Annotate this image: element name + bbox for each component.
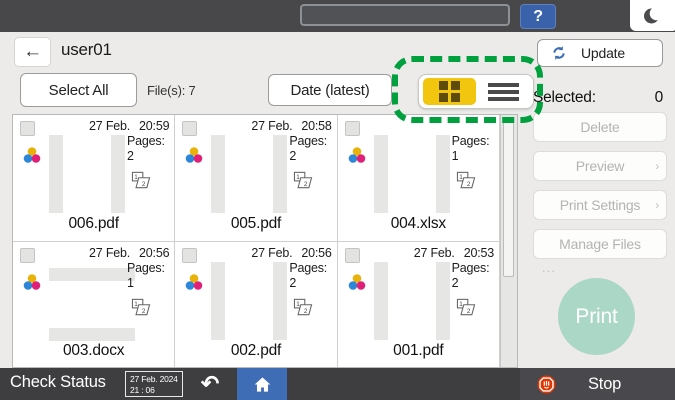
grid-view-icon bbox=[439, 81, 460, 102]
file-datetime: 27 Feb.20:56 bbox=[89, 246, 169, 260]
file-name: 006.pdf bbox=[13, 215, 174, 233]
help-button[interactable]: ? bbox=[520, 4, 556, 29]
file-checkbox[interactable] bbox=[345, 248, 360, 263]
duplex-icon: 1 2 bbox=[131, 298, 151, 316]
delete-button[interactable]: Delete bbox=[533, 112, 667, 142]
file-checkbox[interactable] bbox=[345, 121, 360, 136]
file-checkbox[interactable] bbox=[182, 248, 197, 263]
file-list-panel: 27 Feb.20:59 Pages:2 1 2 006.pdf bbox=[12, 114, 518, 368]
pages-count: Pages:2 bbox=[452, 261, 490, 291]
file-datetime: 27 Feb.20:53 bbox=[414, 246, 494, 260]
back-button[interactable]: ← bbox=[14, 37, 51, 67]
pages-count: Pages:1 bbox=[127, 261, 165, 291]
print-button[interactable]: Print bbox=[558, 278, 635, 355]
file-name: 005.pdf bbox=[175, 215, 336, 233]
check-status-button[interactable]: Check Status bbox=[10, 373, 106, 392]
file-grid: 27 Feb.20:59 Pages:2 1 2 006.pdf bbox=[13, 115, 500, 368]
page-title: user01 bbox=[61, 40, 112, 60]
file-tile[interactable]: 27 Feb.20:56 Pages:1 1 2 003.docx bbox=[13, 242, 175, 368]
scrollbar-thumb[interactable] bbox=[503, 117, 514, 277]
file-name: 002.pdf bbox=[175, 342, 336, 360]
duplex-icon: 1 2 bbox=[456, 298, 476, 316]
manage-files-label: Manage Files bbox=[559, 236, 641, 252]
view-toggle-group bbox=[418, 74, 534, 109]
duplex-icon: 1 2 bbox=[293, 171, 313, 189]
list-view-button[interactable] bbox=[477, 78, 530, 105]
moon-icon bbox=[643, 6, 663, 26]
file-name: 004.xlsx bbox=[338, 215, 499, 233]
energy-saver-button[interactable] bbox=[630, 0, 675, 31]
system-datetime: 27 Feb. 2024 21 : 06 bbox=[125, 371, 183, 397]
system-time: 21 : 06 bbox=[130, 385, 155, 395]
color-mode-icon bbox=[183, 145, 205, 167]
list-view-icon bbox=[488, 83, 519, 101]
print-settings-label: Print Settings bbox=[560, 197, 640, 213]
file-tile[interactable]: 27 Feb.20:58 Pages:2 1 2 005.pdf bbox=[175, 115, 337, 242]
chevron-right-icon: › bbox=[655, 159, 659, 173]
selected-count: 0 bbox=[655, 89, 663, 107]
stop-button[interactable]: Stop bbox=[520, 368, 675, 400]
duplex-icon: 1 2 bbox=[293, 298, 313, 316]
sort-order-button[interactable]: Date (latest) bbox=[268, 74, 392, 106]
system-date: 27 Feb. 2024 bbox=[130, 374, 178, 384]
pages-count: Pages:2 bbox=[127, 134, 165, 164]
update-label: Update bbox=[581, 45, 625, 61]
system-search-input[interactable] bbox=[300, 4, 510, 26]
duplex-icon: 1 2 bbox=[131, 171, 151, 189]
grid-view-button[interactable] bbox=[423, 78, 476, 105]
file-datetime: 27 Feb.20:59 bbox=[89, 119, 169, 133]
selected-label: Selected: bbox=[533, 89, 596, 107]
manage-files-button[interactable]: Manage Files ... bbox=[533, 229, 667, 259]
update-button[interactable]: Update bbox=[537, 39, 663, 67]
file-name: 003.docx bbox=[13, 342, 174, 360]
home-icon bbox=[253, 375, 272, 394]
file-count-label: File(s): 7 bbox=[147, 83, 196, 98]
file-datetime: 27 Feb.20:58 bbox=[251, 119, 331, 133]
selected-count-row: Selected: 0 bbox=[533, 89, 663, 107]
file-tile[interactable]: 27 Feb.20:53 Pages:2 1 2 001.pdf bbox=[338, 242, 500, 368]
scrollbar-track[interactable] bbox=[500, 115, 517, 367]
preview-label: Preview bbox=[576, 158, 624, 174]
file-checkbox[interactable] bbox=[182, 121, 197, 136]
file-datetime: 27 Feb.20:56 bbox=[251, 246, 331, 260]
color-mode-icon bbox=[21, 272, 43, 294]
preview-button[interactable]: Preview › bbox=[533, 151, 667, 181]
stop-label: Stop bbox=[588, 375, 621, 394]
file-name: 001.pdf bbox=[338, 342, 499, 360]
home-button[interactable] bbox=[237, 368, 287, 400]
chevron-right-icon: › bbox=[655, 198, 659, 212]
color-mode-icon bbox=[21, 145, 43, 167]
color-mode-icon bbox=[183, 272, 205, 294]
duplex-icon: 1 2 bbox=[456, 171, 476, 189]
printer-touchscreen: ? ← user01 Update Select All File(s): 7 … bbox=[0, 0, 675, 400]
return-arrow-icon: ↶ bbox=[201, 371, 219, 397]
pages-count: Pages:2 bbox=[289, 261, 327, 291]
file-tile[interactable]: Pages:1 1 2 004.xlsx bbox=[338, 115, 500, 242]
color-mode-icon bbox=[346, 272, 368, 294]
file-checkbox[interactable] bbox=[20, 248, 35, 263]
return-button[interactable]: ↶ bbox=[193, 369, 227, 399]
select-all-button[interactable]: Select All bbox=[20, 73, 137, 107]
stop-icon bbox=[537, 375, 556, 394]
file-tile[interactable]: 27 Feb.20:56 Pages:2 1 2 002.pdf bbox=[175, 242, 337, 368]
refresh-icon bbox=[551, 45, 567, 61]
print-settings-button[interactable]: Print Settings › bbox=[533, 190, 667, 220]
delete-label: Delete bbox=[580, 119, 619, 135]
file-tile[interactable]: 27 Feb.20:59 Pages:2 1 2 006.pdf bbox=[13, 115, 175, 242]
file-checkbox[interactable] bbox=[20, 121, 35, 136]
color-mode-icon bbox=[346, 145, 368, 167]
pages-count: Pages:2 bbox=[289, 134, 327, 164]
pages-count: Pages:1 bbox=[452, 134, 490, 164]
